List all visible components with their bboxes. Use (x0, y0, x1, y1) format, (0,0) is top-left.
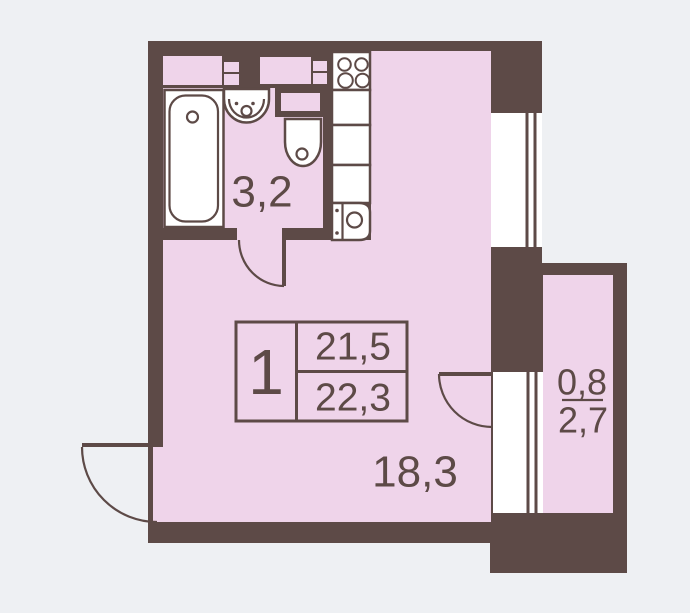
stove-burner (355, 58, 368, 71)
total-area-value: 21,5 (315, 326, 391, 369)
bottom-right-wall-block (490, 513, 627, 573)
living-area-value: 22,3 (315, 377, 391, 420)
vent-shaft (224, 74, 239, 85)
vent-shaft (260, 57, 311, 84)
counter-cabinet (332, 165, 370, 203)
stove-burner (338, 58, 351, 71)
window (491, 113, 542, 247)
kitchen-sink-dot (335, 231, 339, 235)
washbasin-tap-dot (251, 102, 255, 106)
stove-burner (356, 74, 370, 88)
unit-number: 1 (248, 336, 284, 408)
bathroom-doorway-floor (237, 228, 282, 242)
vent-shaft (281, 93, 320, 111)
entry-doorway-floor (153, 447, 164, 522)
vent-shaft (224, 62, 239, 72)
washbasin-tap-dot (235, 102, 239, 106)
main-room-area-label: 18,3 (372, 448, 458, 497)
washbasin (224, 89, 269, 122)
bathtub-rim (165, 90, 224, 227)
stove (332, 52, 370, 90)
kitchen-counter (332, 90, 370, 203)
unit-info-box: 1 21,5 22,3 (236, 322, 407, 421)
counter-cabinet (332, 125, 370, 165)
bathroom-area-label: 3,2 (231, 168, 292, 217)
vent-shaft (163, 56, 222, 85)
stove-burner (338, 73, 353, 88)
toilet (285, 119, 321, 166)
kitchen-sink-dot (335, 209, 339, 213)
balcony-area-label: 2,7 (558, 400, 608, 441)
balcony-coefficient-label: 0,8 (557, 362, 607, 403)
vent-shaft (313, 73, 327, 84)
kitchen-sink (332, 203, 370, 240)
floor-plan: 1 21,5 22,3 3,2 18,3 0,8 2,7 (0, 0, 690, 613)
vent-shaft (313, 61, 327, 71)
counter-cabinet (332, 90, 370, 125)
floor-plan-canvas: 1 21,5 22,3 3,2 18,3 0,8 2,7 (0, 0, 690, 613)
bathtub (165, 90, 224, 227)
